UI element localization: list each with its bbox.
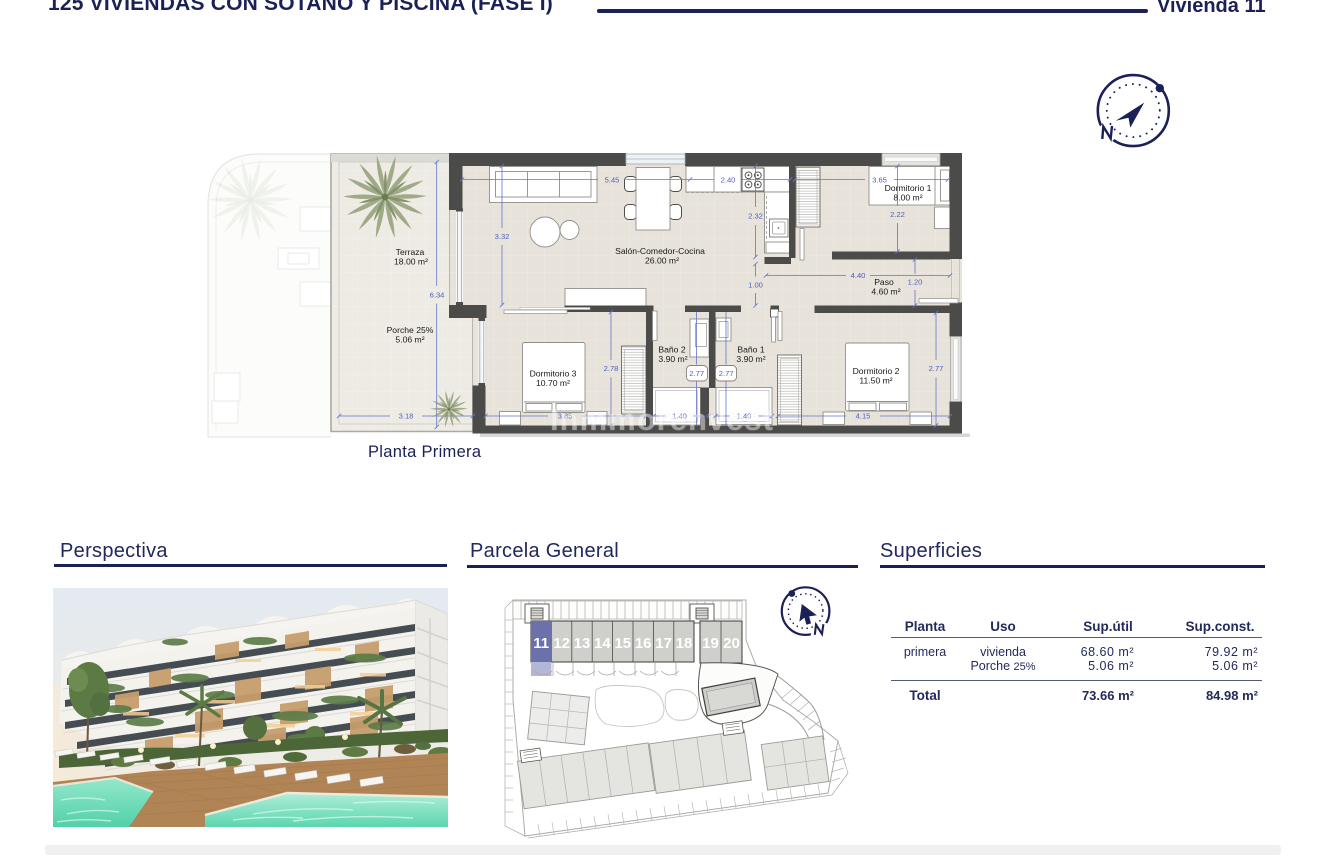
svg-text:10.70 m²: 10.70 m² [536,378,570,388]
svg-text:26.00 m²: 26.00 m² [645,256,679,266]
svg-text:4.15: 4.15 [856,412,871,421]
svg-text:Dormitorio 1: Dormitorio 1 [885,183,932,193]
svg-text:6.34: 6.34 [430,290,445,299]
svg-text:4.60 m²: 4.60 m² [871,287,900,297]
svg-text:1.00: 1.00 [748,280,763,289]
svg-text:2.22: 2.22 [890,210,905,219]
svg-text:18.00 m²: 18.00 m² [394,257,428,267]
svg-text:15: 15 [614,635,631,652]
svg-text:Inmmorenvest: Inmmorenvest [550,402,774,437]
svg-text:2.77: 2.77 [929,364,944,373]
svg-text:12: 12 [553,635,570,652]
svg-text:18: 18 [676,635,693,652]
svg-text:Terraza: Terraza [396,247,425,257]
svg-text:5.06 m²: 5.06 m² [395,335,424,345]
svg-text:2.78: 2.78 [604,364,619,373]
svg-text:2.40: 2.40 [721,175,736,184]
svg-text:3.32: 3.32 [495,232,510,241]
svg-text:14: 14 [594,635,611,652]
svg-text:Paso: Paso [874,277,894,287]
svg-text:Baño 2: Baño 2 [658,345,685,355]
svg-text:Dormitorio 2: Dormitorio 2 [853,366,900,376]
svg-text:4.40: 4.40 [851,271,866,280]
svg-text:2.32: 2.32 [748,212,763,221]
svg-text:Baño 1: Baño 1 [737,345,764,355]
svg-text:17: 17 [655,635,672,652]
svg-text:2.77: 2.77 [689,369,704,378]
svg-text:3.18: 3.18 [399,412,414,421]
svg-text:5.45: 5.45 [605,175,620,184]
svg-text:Porche 25%: Porche 25% [387,325,434,335]
svg-text:3.90 m²: 3.90 m² [736,354,765,364]
svg-text:Salón-Comedor-Cocina: Salón-Comedor-Cocina [615,246,705,256]
svg-text:16: 16 [635,635,652,652]
svg-text:13: 13 [574,635,591,652]
svg-text:11: 11 [533,635,549,652]
svg-text:3.90 m²: 3.90 m² [658,354,687,364]
svg-text:1.20: 1.20 [908,278,923,287]
svg-text:Dormitorio 3: Dormitorio 3 [530,369,577,379]
svg-text:8.00 m²: 8.00 m² [893,193,922,203]
svg-text:19: 19 [702,635,719,652]
svg-text:2.77: 2.77 [719,369,734,378]
svg-text:20: 20 [723,635,740,652]
svg-text:11.50 m²: 11.50 m² [859,376,892,386]
